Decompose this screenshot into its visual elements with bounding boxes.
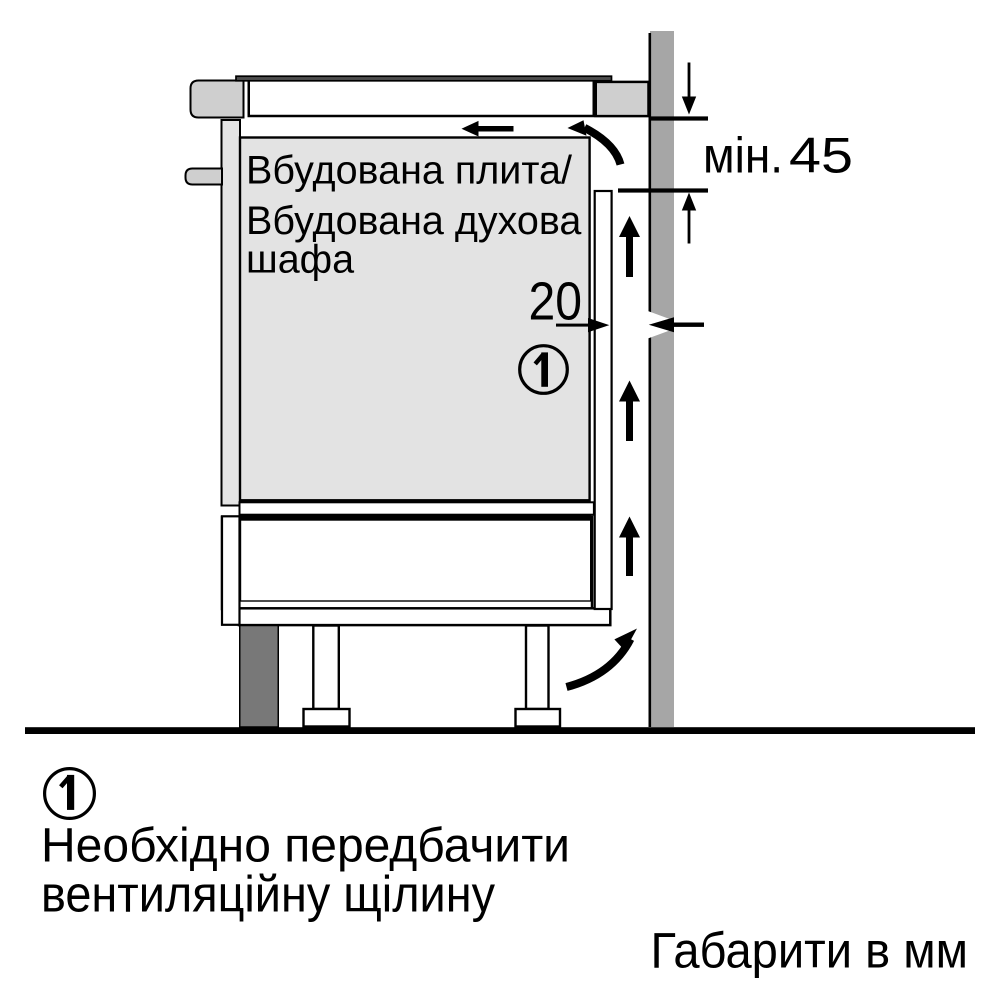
svg-text:20: 20 — [529, 271, 583, 331]
svg-text:Габарити в мм: Габарити в мм — [651, 922, 969, 978]
svg-text:45: 45 — [789, 126, 853, 183]
svg-text:шафа: шафа — [246, 237, 354, 281]
svg-text:мін.: мін. — [703, 127, 783, 183]
svg-text:Вбудована плита/: Вбудована плита/ — [246, 148, 572, 192]
svg-text:вентиляційну щілину: вентиляційну щілину — [41, 866, 495, 923]
svg-text:Вбудована духова: Вбудована духова — [246, 199, 581, 243]
